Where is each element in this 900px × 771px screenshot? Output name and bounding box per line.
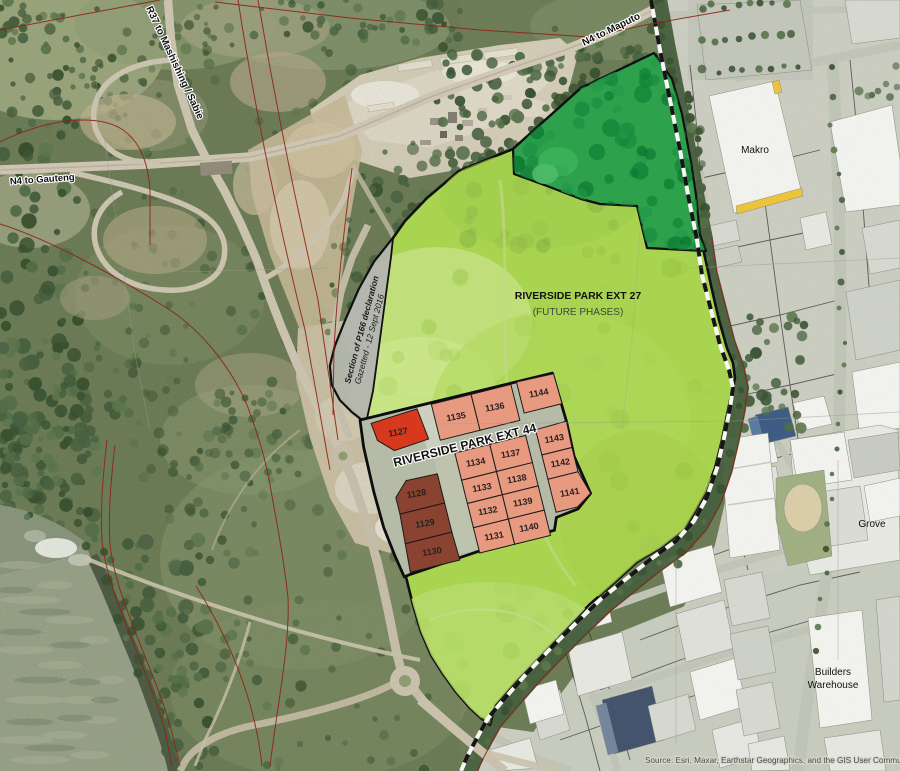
svg-text:Builders: Builders <box>815 667 851 678</box>
svg-text:Grove: Grove <box>858 519 886 530</box>
svg-text:RIVERSIDE PARK EXT 27: RIVERSIDE PARK EXT 27 <box>515 290 642 302</box>
svg-text:Source: Esri, Maxar, Earthstar: Source: Esri, Maxar, Earthstar Geographi… <box>645 756 900 765</box>
svg-text:Warehouse: Warehouse <box>808 680 859 691</box>
svg-text:Makro: Makro <box>741 145 769 156</box>
svg-text:(FUTURE PHASES): (FUTURE PHASES) <box>533 307 624 318</box>
